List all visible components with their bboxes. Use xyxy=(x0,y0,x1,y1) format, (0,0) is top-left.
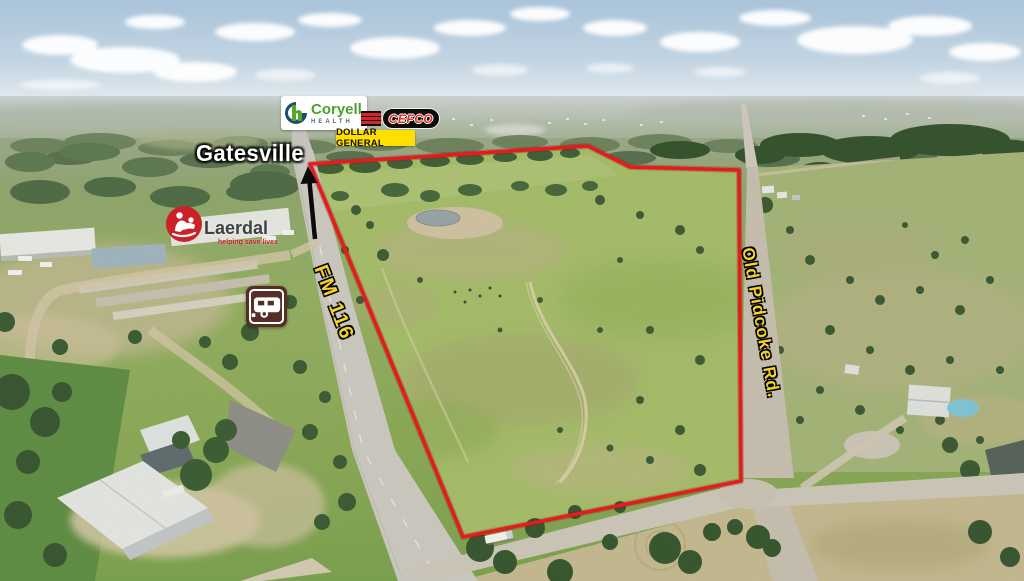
coryell-name: Coryell xyxy=(311,102,362,117)
sky xyxy=(0,0,1024,110)
laerdal-logo: Laerdal helping save lives xyxy=(165,205,295,251)
laerdal-name: Laerdal xyxy=(204,218,268,239)
rv-trailer-glyph xyxy=(246,286,287,327)
photo-grain xyxy=(0,96,1024,581)
aerial-photo-canvas xyxy=(0,0,1024,581)
dollar-general-logo: DOLLAR GENERAL xyxy=(336,130,415,146)
coryell-health-logo: Coryell HEALTH xyxy=(281,96,367,130)
aerial-listing-photo: Gatesville FM 116 Old Pidcoke Rd. Coryel… xyxy=(0,0,1024,581)
rv-sign-icon xyxy=(246,286,287,327)
cefco-stripes-icon xyxy=(361,111,381,126)
coryell-sub: HEALTH xyxy=(311,119,362,125)
cefco-name: CEFCO xyxy=(389,112,434,126)
town-label-gatesville: Gatesville xyxy=(196,140,304,167)
laerdal-mark-icon xyxy=(165,205,203,243)
cefco-logo: CEFCO xyxy=(361,108,440,129)
coryell-monogram-icon xyxy=(284,101,308,125)
laerdal-tagline: helping save lives xyxy=(218,239,278,246)
